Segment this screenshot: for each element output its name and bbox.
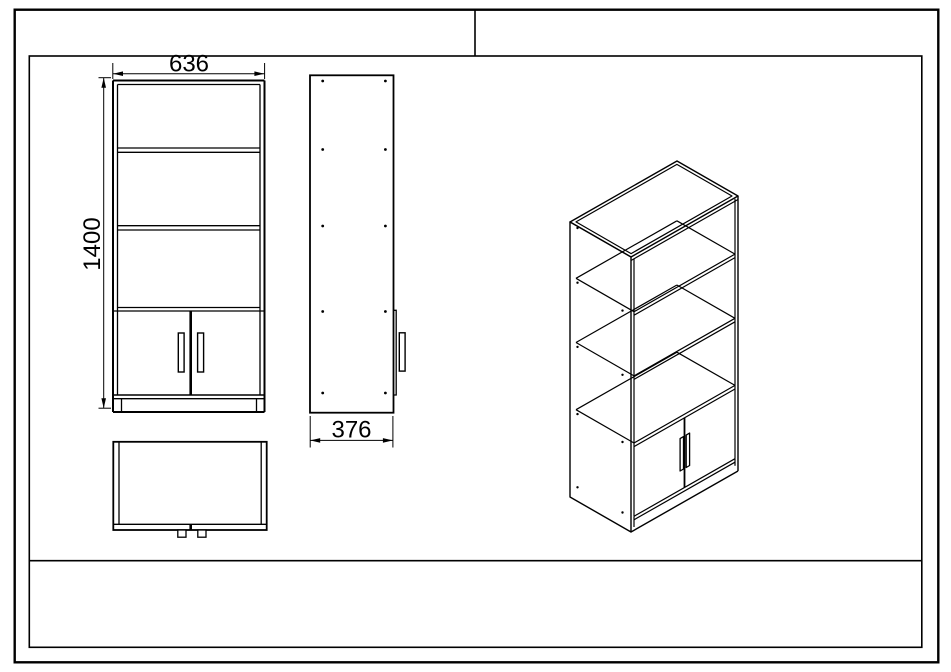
left-door-handle [178,333,184,372]
arrowhead-left [113,71,123,76]
arrowhead-right [254,71,264,76]
shelf-pin-dots [321,80,386,395]
front-width-dimension: 636 [113,51,265,80]
plan-right-handle [198,530,206,537]
iso-left-panel [570,222,631,532]
width-dim-label: 636 [169,51,209,78]
iso-left-door-handle [680,437,683,471]
drawing-sheet: 636 1400 376 [0,0,951,672]
side-panel-outline [310,75,394,412]
plan-view [113,442,266,537]
front-doors [113,311,265,395]
plan-left-handle [178,530,186,537]
front-elevation-view [113,81,265,413]
arrowhead-up [101,78,106,88]
depth-dim-label: 376 [331,417,371,444]
drawing-frame [15,10,939,663]
plan-outline [113,442,266,530]
arrowhead-left [310,438,320,443]
side-depth-dimension: 376 [310,416,393,448]
height-dim-label: 1400 [79,217,106,270]
outer-border [15,10,939,663]
front-shelf-1 [118,148,261,152]
arrowhead-right [383,438,393,443]
side-door-handle [399,333,405,371]
isometric-view [570,161,738,532]
front-shelf-above-doors [113,308,265,312]
front-shelf-2 [118,226,261,230]
technical-drawing-canvas: 636 1400 376 [0,0,951,672]
front-plinth [113,399,265,412]
arrowhead-down [101,398,106,408]
side-elevation-view [310,75,405,412]
front-height-dimension: 1400 [79,78,111,409]
iso-right-door-handle [686,433,689,467]
inner-border [29,56,922,647]
right-door-handle [198,333,204,372]
